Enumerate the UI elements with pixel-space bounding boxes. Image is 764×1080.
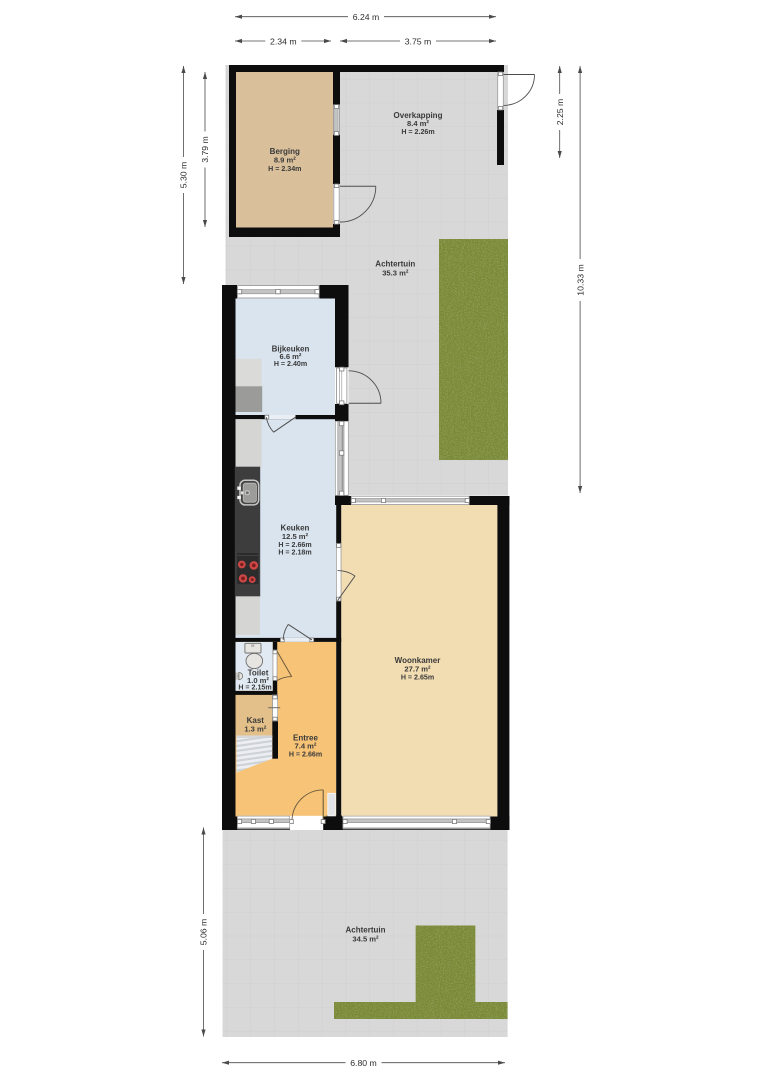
svg-text:Achtertuin: Achtertuin [375,259,415,268]
svg-text:6.24 m: 6.24 m [353,12,380,22]
svg-text:Achtertuin: Achtertuin [346,925,386,934]
svg-text:H = 2.26m: H = 2.26m [401,128,434,136]
svg-text:10.33 m: 10.33 m [575,264,585,295]
svg-text:12.5 m²: 12.5 m² [282,532,309,541]
svg-text:H = 2.66m: H = 2.66m [289,751,322,759]
svg-text:7.4 m²: 7.4 m² [295,741,317,750]
svg-text:H = 2.65m: H = 2.65m [401,674,434,682]
svg-text:2.34 m: 2.34 m [270,36,297,46]
svg-text:2.25 m: 2.25 m [555,99,565,126]
svg-text:3.75 m: 3.75 m [405,36,432,46]
svg-text:5.06 m: 5.06 m [199,919,209,946]
svg-text:H = 2.18m: H = 2.18m [278,549,311,557]
svg-text:6.80 m: 6.80 m [350,1058,377,1068]
svg-text:H = 2.34m: H = 2.34m [268,165,301,173]
svg-text:8.9 m²: 8.9 m² [274,156,296,165]
svg-text:5.30 m: 5.30 m [179,162,189,189]
svg-text:H = 2.40m: H = 2.40m [274,360,307,368]
svg-text:3.79 m: 3.79 m [200,136,210,163]
svg-text:1.3 m²: 1.3 m² [244,724,266,733]
svg-text:8.4 m²: 8.4 m² [407,119,429,128]
svg-text:H = 2.15m: H = 2.15m [238,683,271,691]
svg-text:35.3 m²: 35.3 m² [382,268,409,277]
svg-text:27.7 m²: 27.7 m² [404,665,431,674]
svg-text:34.5 m²: 34.5 m² [352,934,379,943]
